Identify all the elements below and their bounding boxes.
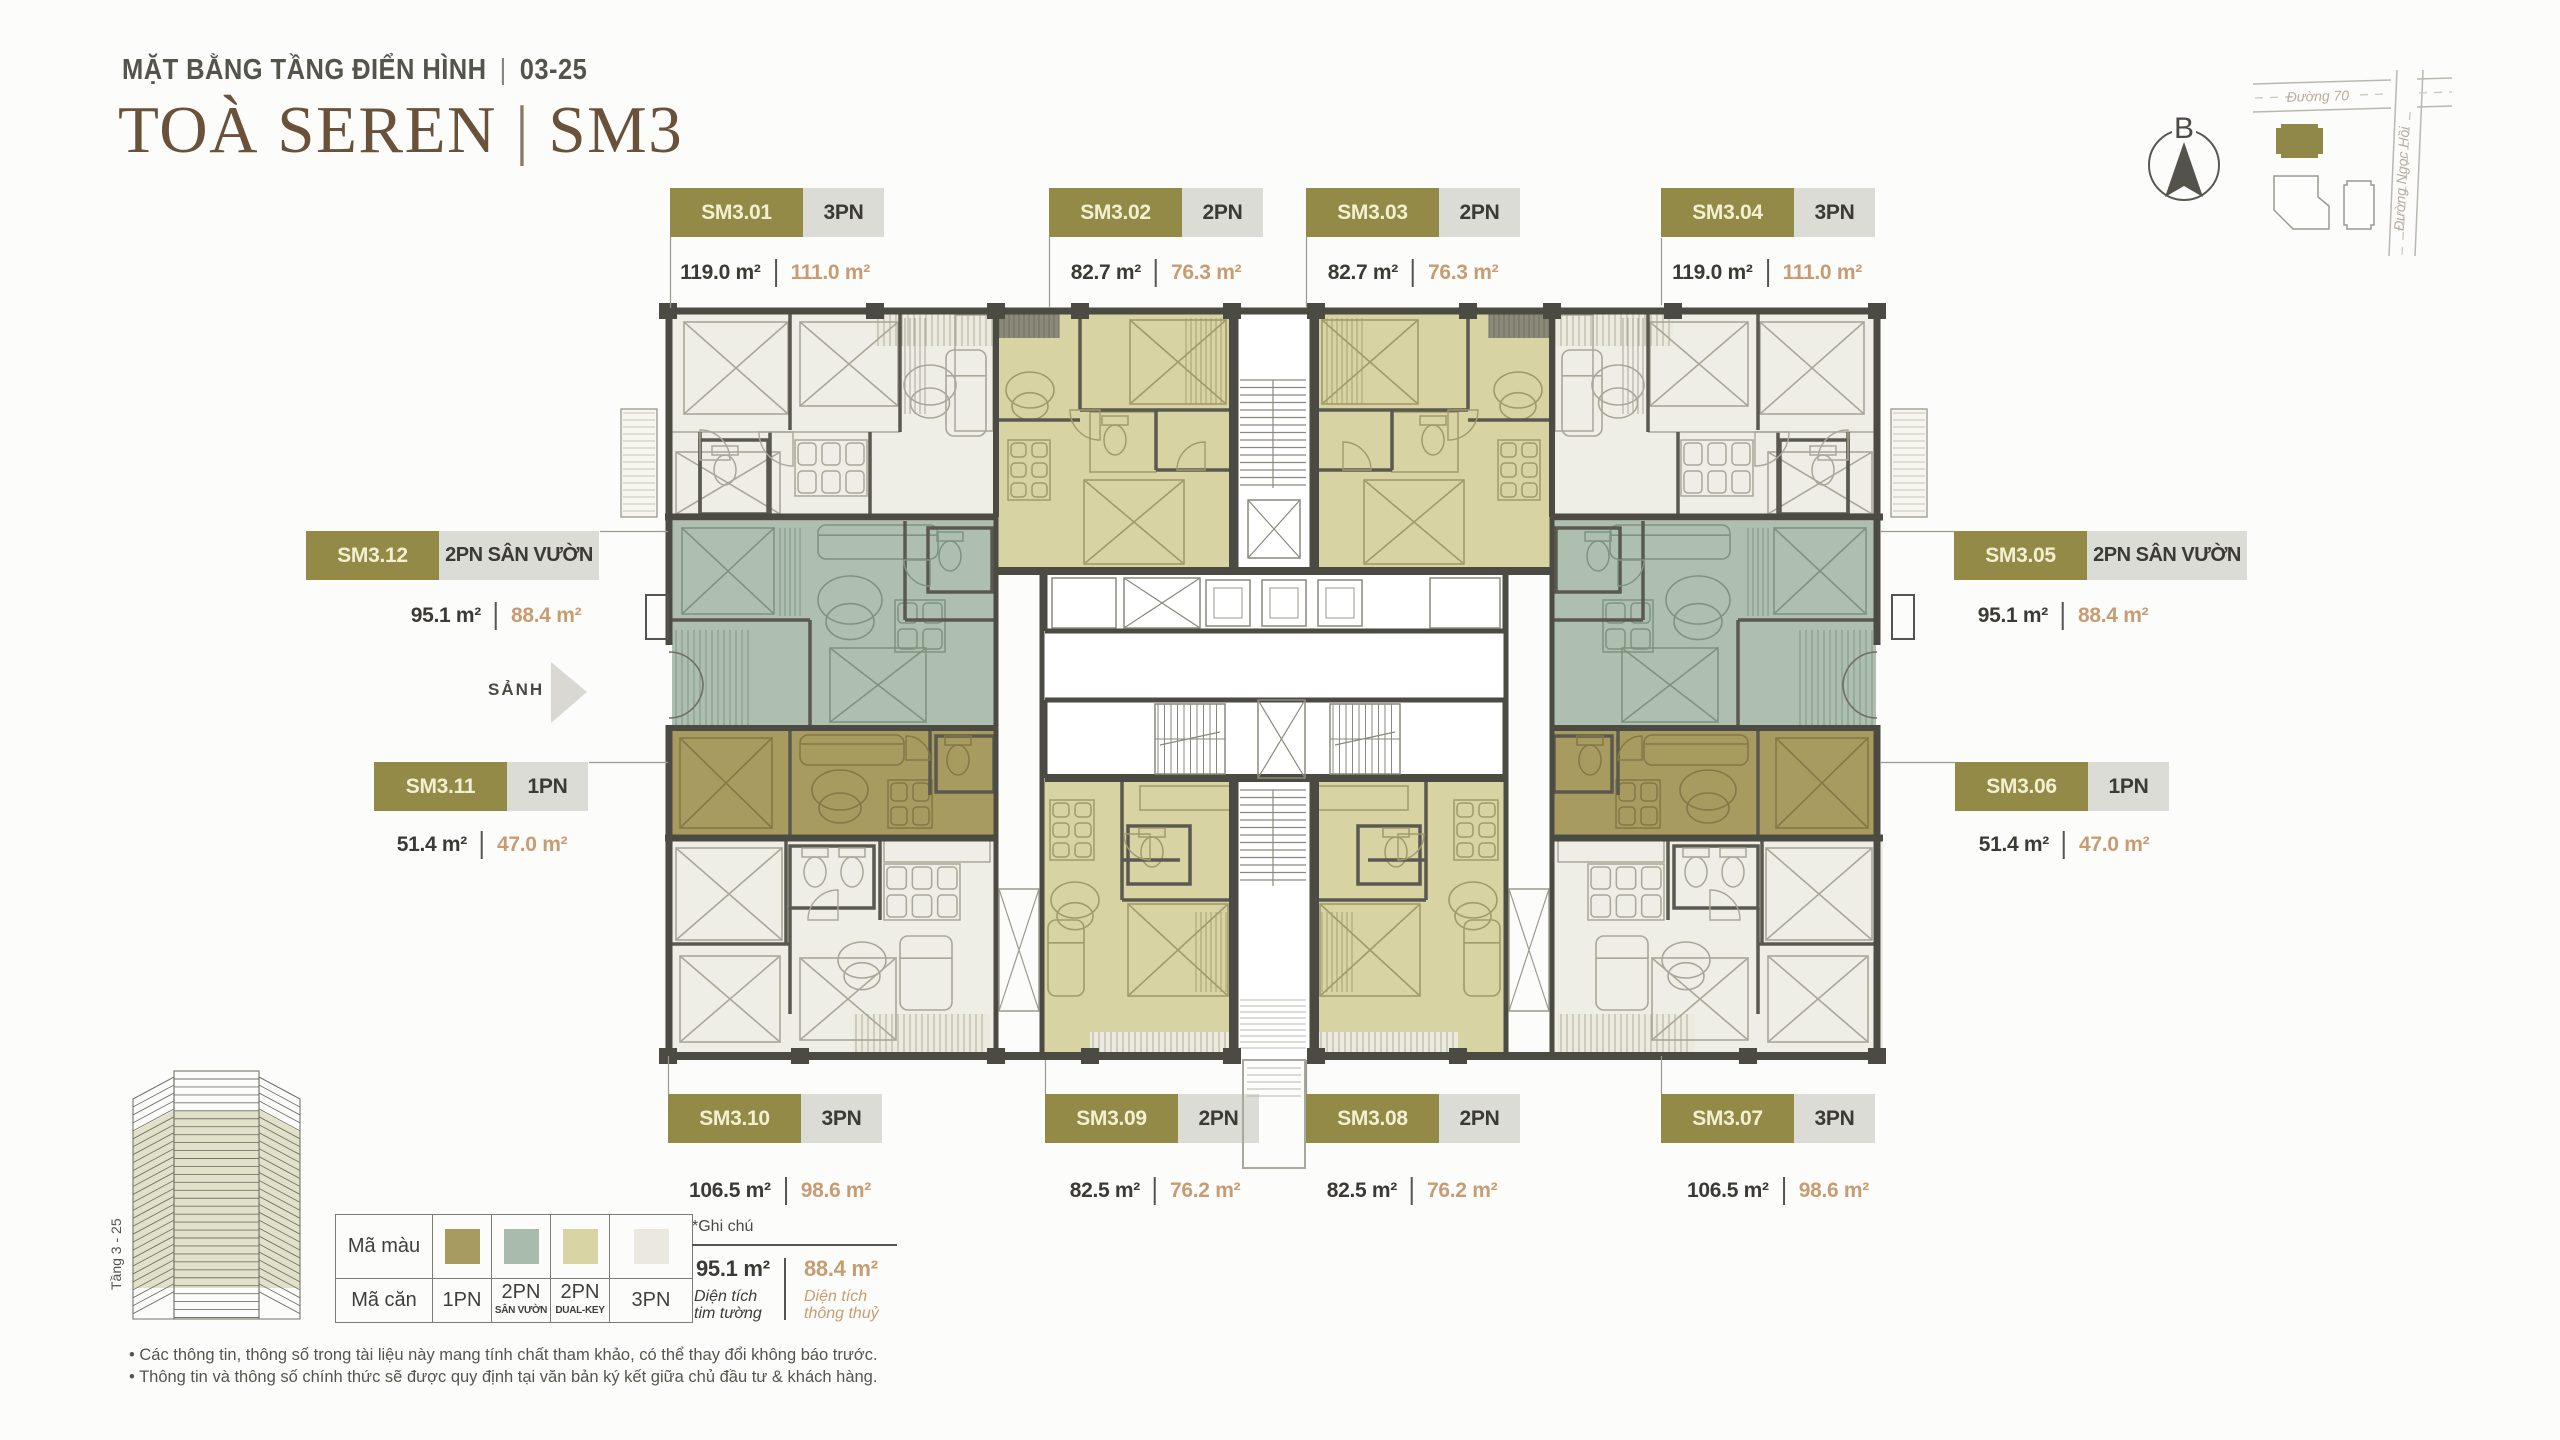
svg-text:Đường 70: Đường 70 bbox=[2286, 87, 2349, 105]
svg-text:B: B bbox=[2174, 112, 2194, 145]
